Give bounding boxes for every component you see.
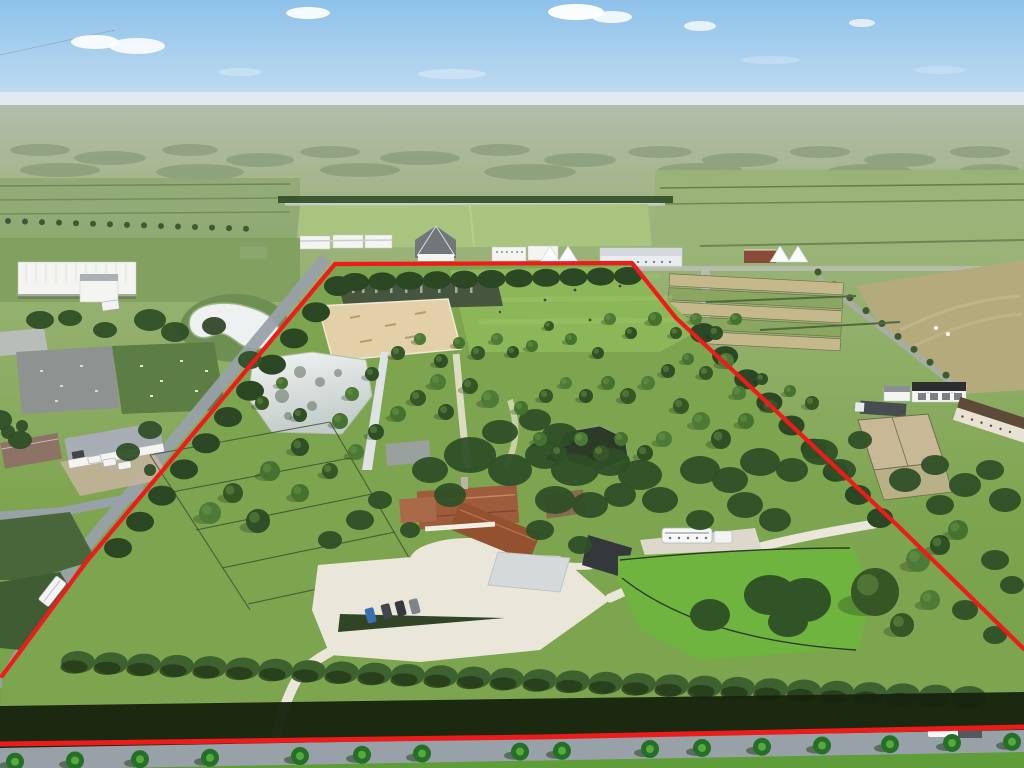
north-road <box>580 266 1024 271</box>
charcoal-arena <box>16 346 120 414</box>
aerial-photo <box>0 0 1024 768</box>
canal-tree-line <box>278 196 673 203</box>
pool-pavilion <box>488 552 570 592</box>
sand-arena <box>318 299 461 361</box>
